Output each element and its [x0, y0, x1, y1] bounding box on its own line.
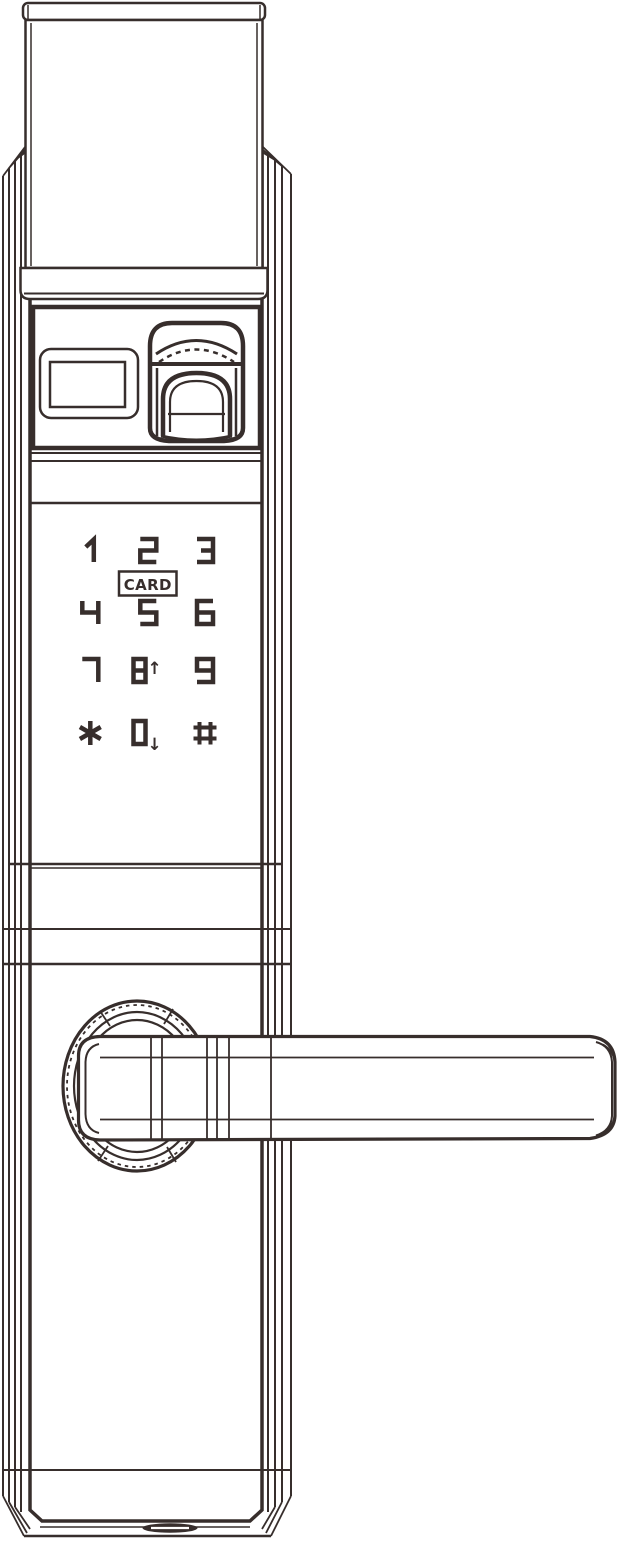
key-0	[134, 721, 146, 744]
side-rails	[3, 147, 291, 1536]
lever-handle	[79, 1037, 616, 1141]
key-7	[82, 659, 98, 682]
top-cover-face	[26, 20, 263, 268]
bottom-port	[143, 1523, 198, 1533]
key-5	[140, 601, 156, 624]
key-0-down-arrow-icon: ↓	[148, 735, 162, 755]
door-lock-technical-drawing: CARD ↑ ↓	[0, 0, 617, 1541]
top-cover	[21, 3, 268, 299]
key-6	[197, 601, 213, 624]
touch-keypad: CARD ↑ ↓	[80, 539, 217, 755]
key-2	[140, 539, 156, 562]
key-4	[82, 601, 98, 624]
lock-body	[30, 150, 262, 1527]
sensor-panel	[33, 307, 260, 448]
card-reader-window	[40, 349, 138, 418]
key-star	[80, 721, 101, 745]
card-key: CARD	[119, 572, 177, 596]
key-8	[134, 659, 146, 682]
key-9	[197, 659, 213, 682]
key-3	[197, 539, 213, 562]
key-1	[86, 540, 94, 563]
key-8-up-arrow-icon: ↑	[148, 659, 162, 679]
key-hash	[194, 722, 217, 745]
top-cover-cap	[23, 3, 265, 20]
card-key-label: CARD	[124, 576, 172, 594]
fingerprint-scanner	[150, 323, 243, 441]
